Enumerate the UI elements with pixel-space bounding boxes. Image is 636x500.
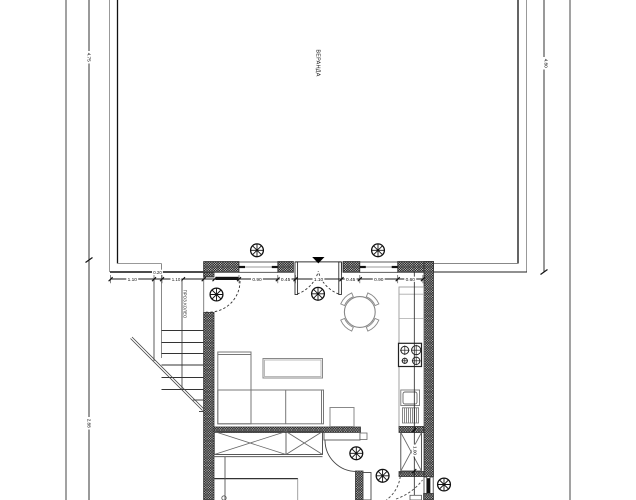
svg-text:4.80: 4.80 [543,59,548,68]
svg-text:0.20: 0.20 [153,270,162,275]
svg-text:0.90: 0.90 [252,277,262,283]
svg-text:1.10: 1.10 [314,277,324,283]
svg-text:1.00: 1.00 [412,446,417,455]
svg-text:0.45: 0.45 [281,277,291,283]
svg-text:1.10: 1.10 [128,277,138,283]
svg-text:4.75: 4.75 [86,53,91,62]
svg-text:0.90: 0.90 [374,277,384,283]
svg-text:0.60: 0.60 [406,277,416,283]
svg-text:ПРОЗ.КОЛЕО: ПРОЗ.КОЛЕО [182,290,187,319]
svg-text:1.10: 1.10 [172,277,181,282]
svg-text:ВЕРАНДА: ВЕРАНДА [315,49,321,76]
svg-text:2.88: 2.88 [86,419,91,428]
svg-text:0.45: 0.45 [346,277,356,283]
